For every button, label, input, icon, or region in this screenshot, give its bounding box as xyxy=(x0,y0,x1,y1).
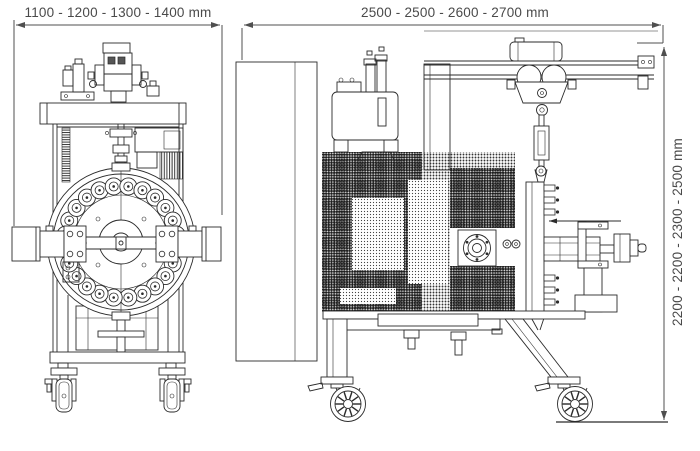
front-right-arm xyxy=(156,226,221,262)
shaft-tip xyxy=(638,244,646,252)
dimension-label-side-width: 2500 - 2500 - 2600 - 2700 mm xyxy=(361,5,549,20)
front-right-cylinder xyxy=(147,86,159,96)
stud-bolt xyxy=(544,209,555,215)
dimension-side-height: 2200 - 2200 - 2300 - 2500 mm xyxy=(664,47,685,420)
stud-bolt xyxy=(544,275,555,281)
vent-grille xyxy=(160,152,183,179)
shaft-collar xyxy=(110,129,132,137)
stud-bolt xyxy=(544,185,555,191)
technical-drawing-page: 1100 - 1200 - 1300 - 1400 mm 2500 - 2500… xyxy=(0,0,700,451)
machine-dimension-drawing: 1100 - 1200 - 1300 - 1400 mm 2500 - 2500… xyxy=(0,0,700,451)
rail-end-bracket xyxy=(638,76,648,89)
stud-bolt xyxy=(544,197,555,203)
caster-wheel xyxy=(164,379,180,412)
right-arm-flange xyxy=(156,226,178,262)
front-base-beam xyxy=(50,352,185,363)
hydraulic-cylinder xyxy=(544,237,600,261)
dimension-label-front-width: 1100 - 1200 - 1300 - 1400 mm xyxy=(25,5,212,20)
stud-bolt xyxy=(544,299,555,305)
rail-trolley xyxy=(507,65,576,103)
side-gearbox xyxy=(450,228,520,266)
caster-wheel xyxy=(56,379,72,412)
front-top-assembly xyxy=(61,43,159,102)
frame-table xyxy=(378,314,478,326)
front-left-cylinder xyxy=(73,64,84,92)
side-cabinet xyxy=(236,62,317,361)
bottom-guide-bar xyxy=(98,331,144,337)
side-top-box xyxy=(332,47,398,160)
top-motor xyxy=(337,82,361,92)
dimension-side-width: 2500 - 2500 - 2600 - 2700 mm xyxy=(242,5,663,60)
stud-bolt xyxy=(544,287,555,293)
turnbuckle xyxy=(534,105,549,177)
front-gantry-plate xyxy=(40,103,186,124)
left-arm-flange xyxy=(64,226,86,262)
front-view xyxy=(12,43,221,412)
front-base xyxy=(45,352,191,412)
side-view xyxy=(236,31,668,422)
spring-guide xyxy=(62,128,70,182)
side-left-caster xyxy=(308,377,366,422)
side-right-caster xyxy=(535,377,593,422)
valve-cylinder xyxy=(366,64,375,92)
front-right-caster xyxy=(159,368,191,412)
front-left-caster xyxy=(45,368,77,412)
frame-front-leg xyxy=(327,319,347,377)
dimension-label-side-height: 2200 - 2200 - 2300 - 2500 mm xyxy=(670,138,685,326)
valve-cylinder xyxy=(377,60,386,92)
